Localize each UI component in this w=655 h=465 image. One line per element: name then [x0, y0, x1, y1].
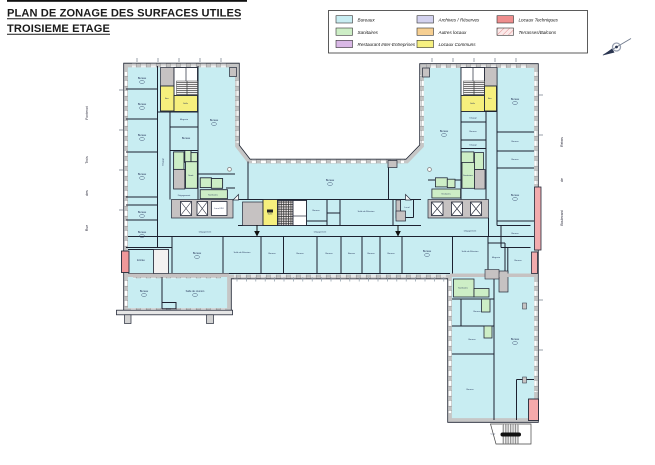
svg-text:Dégagt: Dégagt [469, 144, 476, 147]
svg-text:Sanitaires: Sanitaires [458, 287, 469, 290]
svg-text:Sanitaires: Sanitaires [208, 194, 219, 197]
svg-text:Bureau: Bureau [511, 193, 520, 197]
svg-text:Cour: Cour [491, 433, 496, 436]
svg-text:Sanitaires: Sanitaires [358, 30, 379, 35]
svg-text:Dégagement: Dégagement [178, 194, 191, 197]
svg-text:TROISIEME ETAGE: TROISIEME ETAGE [7, 23, 110, 35]
svg-text:Dégagement: Dégagement [314, 231, 327, 234]
svg-text:Local VDI: Local VDI [214, 208, 224, 210]
svg-text:Boulevard: Boulevard [560, 210, 564, 225]
svg-text:Fontenot: Fontenot [85, 106, 89, 119]
svg-text:Dégagement: Dégagement [464, 230, 477, 233]
svg-text:Terrasses/Balcons: Terrasses/Balcons [519, 30, 557, 35]
svg-text:Salle: Salle [470, 103, 476, 105]
svg-text:Bureau: Bureau [138, 133, 147, 137]
svg-text:Locaux Communs: Locaux Communs [439, 42, 477, 47]
svg-text:Dégagt: Dégagt [162, 158, 165, 165]
svg-text:Bureau: Bureau [469, 130, 477, 133]
svg-text:Bureau: Bureau [138, 76, 147, 80]
svg-text:Rue: Rue [85, 225, 89, 231]
svg-text:Bureau: Bureau [423, 249, 432, 253]
svg-text:Bureau: Bureau [325, 252, 333, 255]
svg-text:Bureau: Bureau [511, 140, 519, 143]
svg-text:Bureau: Bureau [466, 388, 474, 391]
svg-text:Vestiaires: Vestiaires [441, 193, 451, 196]
svg-text:Salle de réunion: Salle de réunion [186, 289, 205, 293]
svg-text:des: des [85, 190, 89, 196]
svg-text:Bureau: Bureau [367, 252, 375, 255]
svg-text:Bureau: Bureau [193, 251, 202, 255]
svg-text:Bureaux: Bureaux [358, 18, 376, 23]
svg-text:Bureau: Bureau [511, 337, 520, 341]
svg-text:Salle: Salle [183, 103, 189, 105]
svg-text:Salle de Réunion: Salle de Réunion [462, 251, 479, 253]
svg-text:Bureau: Bureau [268, 252, 276, 255]
svg-text:Bureau: Bureau [296, 252, 304, 255]
svg-text:Bureau: Bureau [140, 289, 149, 293]
svg-text:Bureau: Bureau [138, 102, 147, 106]
svg-text:Sanit.: Sanit. [188, 174, 194, 177]
svg-text:Salle de Réunion: Salle de Réunion [358, 211, 375, 213]
svg-text:Entrée: Entrée [137, 258, 145, 262]
svg-text:Bureau: Bureau [326, 178, 335, 182]
svg-text:Archives / Réserves: Archives / Réserves [438, 18, 481, 23]
svg-text:Dégagement: Dégagement [199, 231, 212, 234]
svg-text:PLAN DE ZONAGE DES SURFACES UT: PLAN DE ZONAGE DES SURFACES UTILES [7, 8, 242, 20]
svg-text:Bureau: Bureau [138, 172, 147, 176]
svg-text:Bureau: Bureau [348, 252, 356, 255]
svg-text:Bureau: Bureau [182, 136, 191, 140]
svg-text:Magasin: Magasin [492, 257, 501, 259]
svg-text:Bureau: Bureau [312, 209, 320, 212]
svg-text:Trois: Trois [85, 156, 89, 164]
svg-text:Bureau: Bureau [440, 129, 449, 133]
svg-text:Magasin: Magasin [180, 119, 189, 121]
svg-text:Bureau: Bureau [511, 232, 519, 235]
svg-text:de: de [560, 178, 564, 182]
svg-text:Bureau: Bureau [511, 158, 519, 161]
svg-text:Restaurant Inter-Entreprises: Restaurant Inter-Entreprises [358, 42, 416, 47]
svg-text:Bureau: Bureau [511, 97, 520, 101]
svg-text:Reims: Reims [560, 137, 564, 147]
svg-text:Bureau: Bureau [210, 118, 219, 122]
svg-text:Salle de Réunion: Salle de Réunion [234, 252, 251, 254]
svg-text:Sanitaires: Sanitaires [463, 174, 474, 177]
svg-text:Salle: Salle [268, 214, 274, 216]
svg-text:Locaux Techniques: Locaux Techniques [519, 18, 559, 23]
svg-text:Bureau: Bureau [514, 259, 522, 262]
svg-text:Autres locaux: Autres locaux [438, 30, 468, 35]
svg-text:Bureau: Bureau [468, 338, 476, 341]
svg-text:Local: Local [404, 207, 410, 209]
svg-text:Bureau: Bureau [138, 210, 147, 214]
svg-text:Bureau: Bureau [387, 252, 395, 255]
svg-text:Dégagt: Dégagt [469, 117, 476, 120]
svg-text:Bureau: Bureau [138, 230, 147, 234]
svg-text:Bureau: Bureau [473, 310, 481, 313]
